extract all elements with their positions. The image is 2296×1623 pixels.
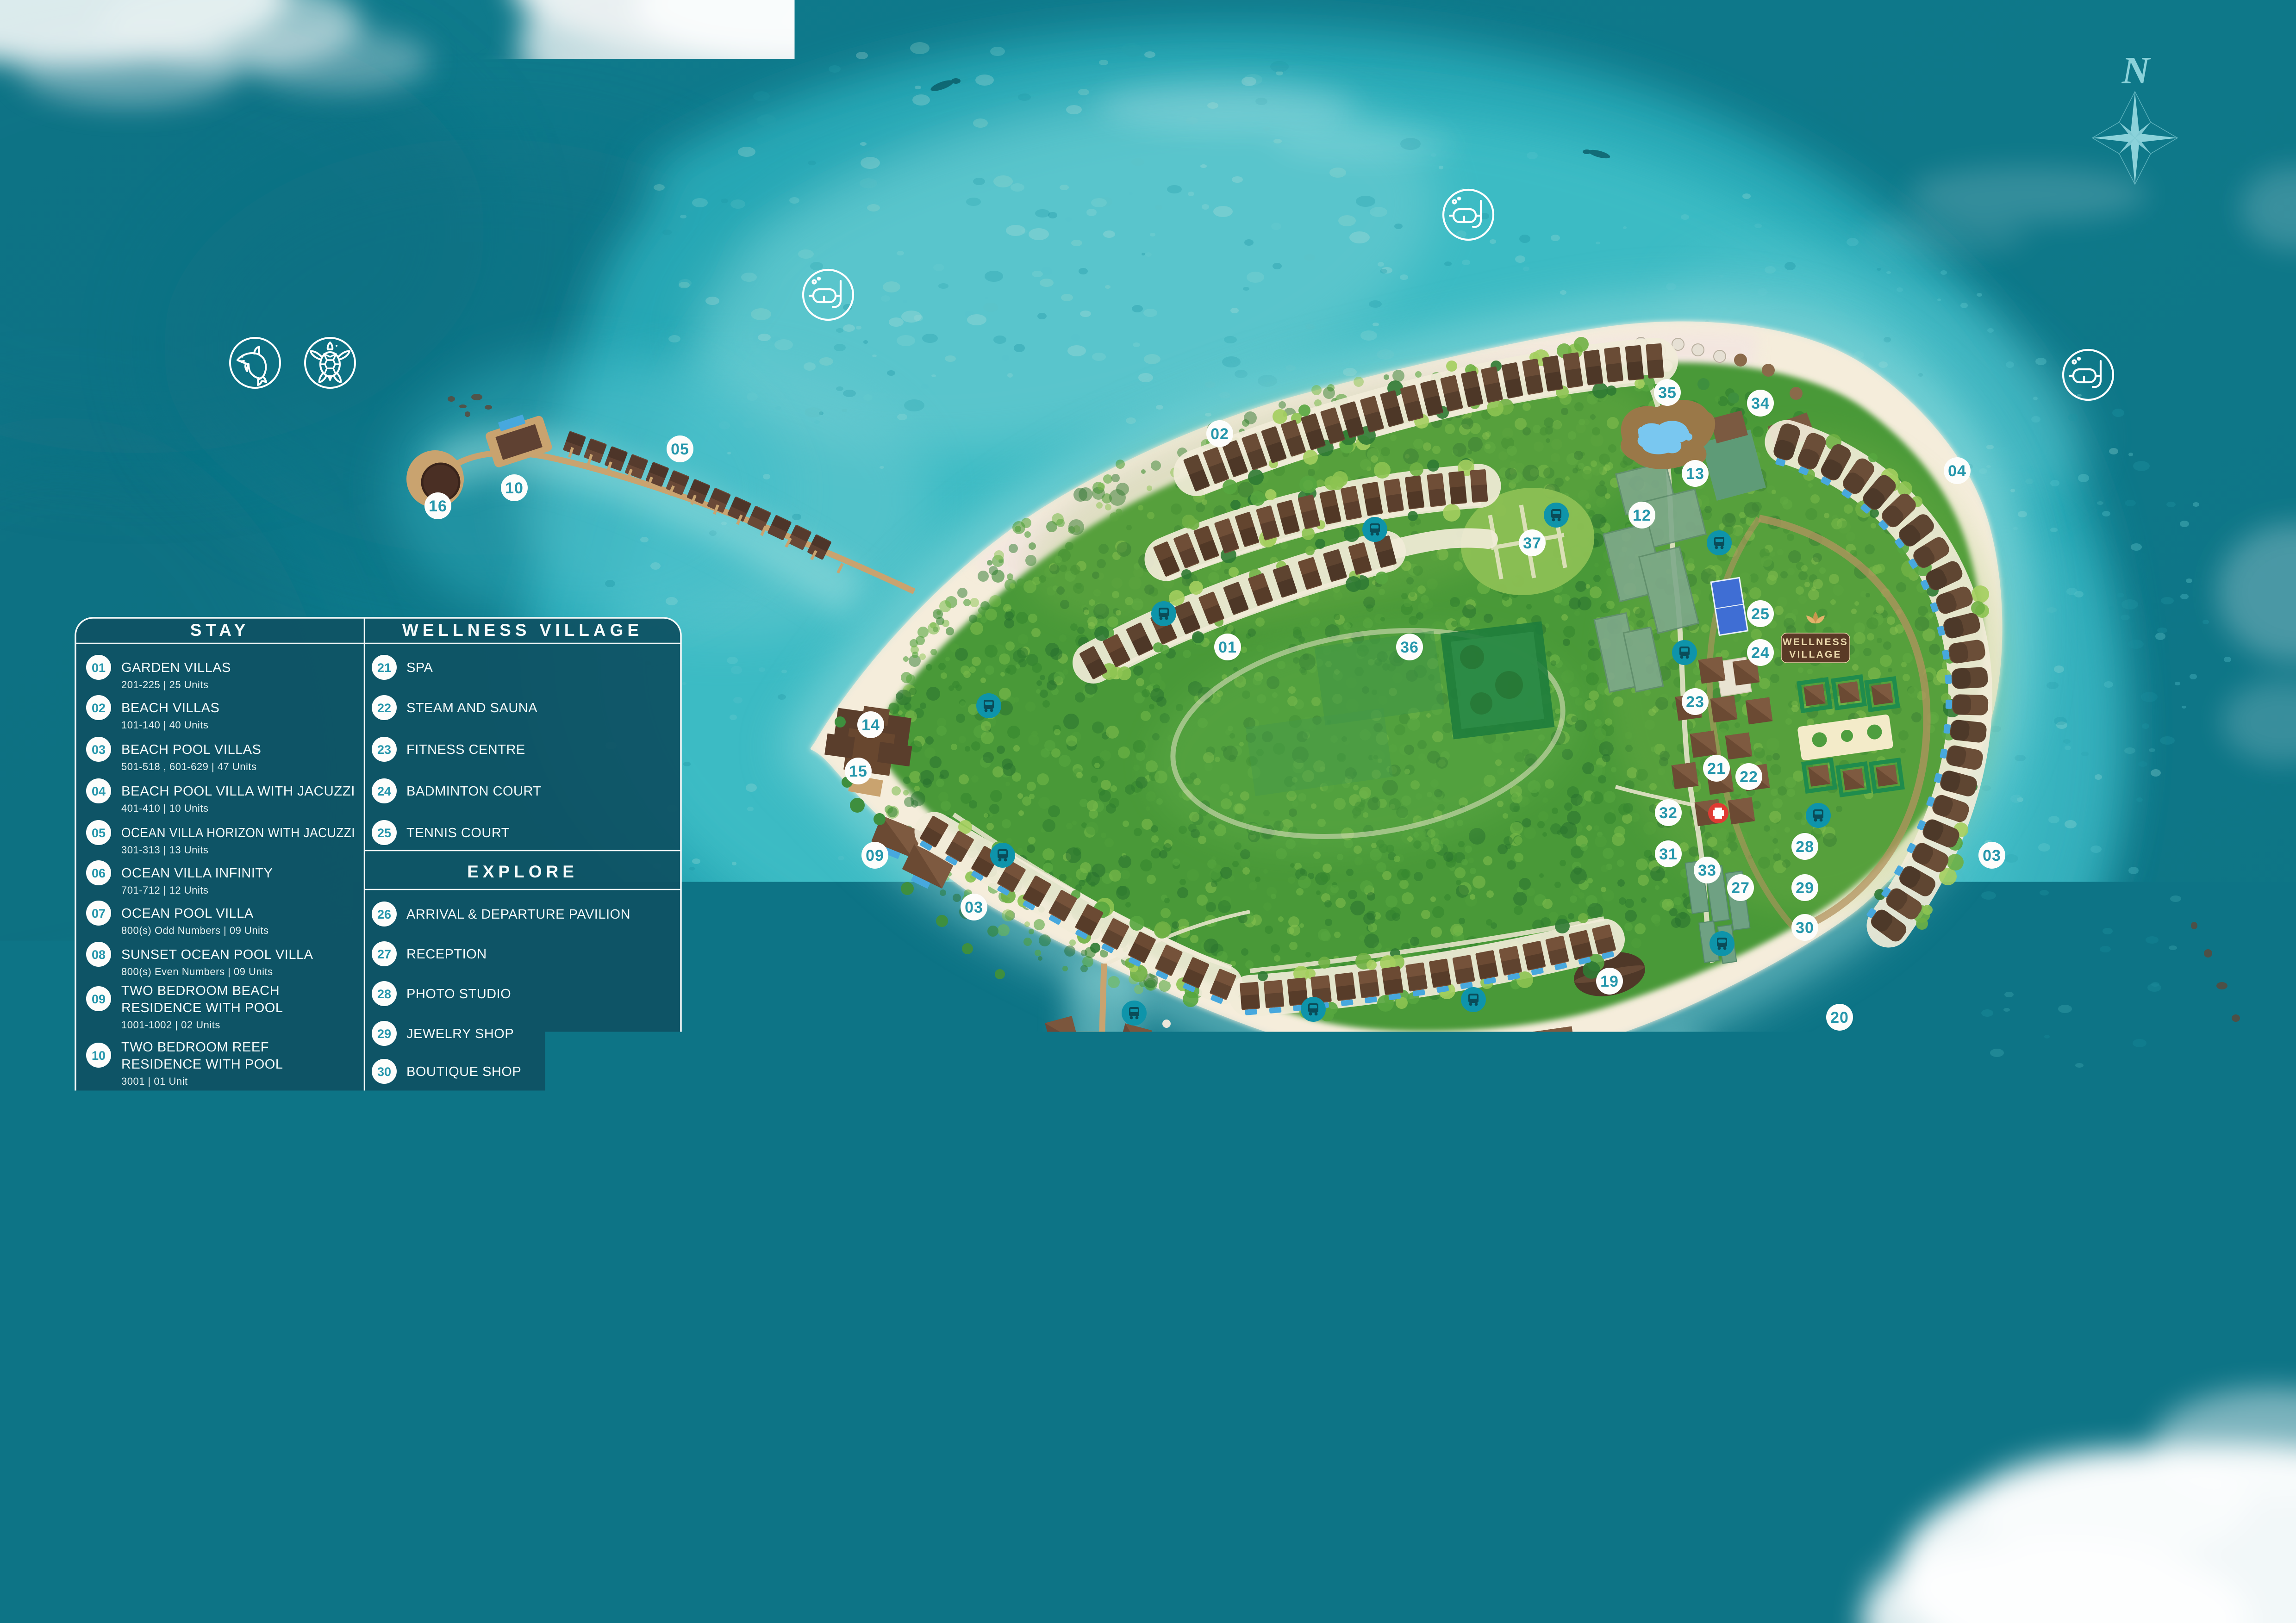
svg-text:22: 22	[377, 701, 391, 715]
svg-text:RECEPTION: RECEPTION	[406, 947, 487, 962]
svg-text:OLIVES & VINES: OLIVES & VINES	[121, 1387, 230, 1402]
svg-text:EXPLORE: EXPLORE	[467, 862, 578, 881]
svg-text:03: 03	[1983, 847, 2001, 864]
svg-text:37: 37	[1523, 535, 1541, 552]
svg-text:27: 27	[1731, 879, 1750, 897]
svg-text:21: 21	[1707, 760, 1726, 777]
svg-text:PAVILION: PAVILION	[406, 1388, 468, 1403]
svg-text:AQUA BITE: AQUA BITE	[121, 1472, 194, 1487]
svg-text:31: 31	[1659, 846, 1678, 863]
svg-text:07: 07	[92, 907, 106, 920]
svg-text:38: 38	[377, 1389, 391, 1403]
svg-text:11: 11	[92, 1098, 106, 1112]
svg-text:06: 06	[992, 1084, 1010, 1101]
svg-text:DIVE CLUB: DIVE CLUB	[406, 1183, 480, 1198]
svg-text:12: 12	[1633, 507, 1651, 524]
svg-text:RAIYVILLA: RAIYVILLA	[121, 1267, 191, 1281]
svg-text:Seafood Restaurant & Bar (Open: Seafood Restaurant & Bar (Opening Soon)	[121, 1491, 324, 1502]
svg-text:13: 13	[1686, 465, 1704, 483]
svg-text:16: 16	[92, 1347, 106, 1361]
svg-text:02: 02	[1210, 425, 1229, 443]
svg-text:JAAFAIY: JAAFAIY	[121, 1185, 177, 1200]
svg-text:WELLNESS: WELLNESS	[1783, 637, 1848, 647]
svg-text:12: 12	[92, 1186, 106, 1200]
svg-text:701-712 | 12 Units: 701-712 | 12 Units	[121, 884, 208, 896]
svg-text:32: 32	[1659, 804, 1678, 822]
svg-text:401-410 | 10 Units: 401-410 | 10 Units	[121, 802, 208, 814]
svg-text:16: 16	[429, 497, 447, 515]
svg-text:OCEAN POOL VILLA: OCEAN POOL VILLA	[121, 906, 254, 921]
svg-text:07: 07	[1148, 1219, 1167, 1236]
svg-text:05: 05	[92, 826, 106, 840]
svg-text:PHOTO STUDIO: PHOTO STUDIO	[406, 987, 511, 1001]
svg-text:35: 35	[377, 1264, 391, 1278]
svg-text:WELLNESS VILLAGE: WELLNESS VILLAGE	[402, 621, 643, 640]
svg-text:04: 04	[92, 784, 106, 798]
svg-text:29: 29	[1796, 879, 1814, 897]
svg-text:30: 30	[1796, 919, 1814, 937]
svg-text:30: 30	[377, 1065, 391, 1079]
svg-text:32: 32	[377, 1143, 391, 1157]
svg-text:18: 18	[92, 1430, 106, 1444]
svg-text:TURTLE: TURTLE	[477, 1523, 531, 1537]
svg-text:OCEAN VILLA INFINITY: OCEAN VILLA INFINITY	[121, 866, 273, 881]
svg-text:04: 04	[1948, 462, 1966, 480]
svg-text:23: 23	[1686, 693, 1704, 711]
svg-text:1001-1002 | 02 Units: 1001-1002 | 02 Units	[121, 1019, 220, 1031]
svg-text:3001 | 01 Unit: 3001 | 01 Unit	[121, 1076, 188, 1087]
svg-text:UDHARES BAR: UDHARES BAR	[121, 1227, 221, 1242]
svg-text:KIDS CLUB: KIDS CLUB	[406, 1103, 480, 1118]
svg-text:(TWO BEDROOM WITH POOL): (TWO BEDROOM WITH POOL)	[121, 1106, 319, 1121]
svg-text:LEBANESE RESTAURANT: LEBANESE RESTAURANT	[121, 1430, 290, 1444]
svg-text:33: 33	[1698, 862, 1716, 879]
svg-text:34: 34	[1751, 395, 1770, 412]
svg-text:17: 17	[92, 1387, 106, 1401]
svg-text:20: 20	[1830, 1009, 1849, 1026]
svg-text:01: 01	[92, 661, 106, 675]
svg-text:01: 01	[1218, 639, 1237, 656]
svg-text:03: 03	[965, 899, 983, 916]
svg-text:GARDEN VILLAS: GARDEN VILLAS	[121, 660, 231, 675]
svg-text:28: 28	[377, 987, 391, 1001]
svg-text:BADMINTON COURT: BADMINTON COURT	[406, 784, 542, 799]
svg-text:N: N	[2121, 49, 2152, 92]
svg-text:36: 36	[1400, 639, 1419, 656]
svg-text:TWO BEDROOM REEF: TWO BEDROOM REEF	[121, 1040, 269, 1055]
svg-text:23: 23	[377, 743, 391, 757]
svg-text:20: 20	[92, 1516, 106, 1530]
svg-text:BOUTIQUE SHOP: BOUTIQUE SHOP	[406, 1064, 521, 1079]
svg-text:CLINIC: CLINIC	[406, 1143, 452, 1157]
svg-text:02: 02	[92, 701, 106, 715]
svg-text:TEPPAN DE OISHI: TEPPAN DE OISHI	[121, 1307, 240, 1322]
svg-text:RESIDENCE WITH POOL: RESIDENCE WITH POOL	[121, 1057, 283, 1072]
svg-text:OCEAN VILLA HORIZON WITH JACU: OCEAN VILLA HORIZON WITH JACUZZI	[121, 826, 355, 840]
svg-text:25: 25	[377, 826, 391, 840]
svg-text:SPA: SPA	[406, 660, 433, 675]
svg-text:Mexican Restaurant & Bar: Mexican Restaurant & Bar	[121, 1365, 246, 1376]
svg-text:33: 33	[377, 1183, 391, 1197]
svg-text:26: 26	[377, 908, 391, 921]
svg-text:29: 29	[377, 1027, 391, 1041]
svg-text:DOLPHIN: DOLPHIN	[390, 1523, 452, 1537]
svg-text:36: 36	[377, 1305, 391, 1319]
svg-text:BEACH VILLAS: BEACH VILLAS	[121, 701, 219, 715]
svg-text:25: 25	[1751, 605, 1770, 623]
svg-text:ARRIVAL & DEPARTURE PAVILION: ARRIVAL & DEPARTURE PAVILION	[406, 907, 630, 922]
svg-text:101-140 | 40 Units: 101-140 | 40 Units	[121, 719, 208, 731]
svg-text:MOSQUE: MOSQUE	[406, 1305, 468, 1319]
svg-text:28: 28	[1796, 838, 1814, 856]
svg-text:10: 10	[92, 1049, 106, 1063]
svg-text:19: 19	[1600, 973, 1619, 990]
svg-text:STAY: STAY	[190, 621, 250, 640]
svg-text:TENNIS COURT: TENNIS COURT	[406, 826, 510, 840]
svg-text:09: 09	[866, 847, 884, 864]
svg-text:21: 21	[377, 661, 391, 675]
svg-text:09: 09	[92, 992, 106, 1006]
svg-text:INNER REEF LINE: INNER REEF LINE	[1370, 1238, 1564, 1256]
svg-text:Indian Vegetarian Restaurant: Indian Vegetarian Restaurant	[121, 1534, 260, 1546]
svg-text:TWO BEDROOM BEACH: TWO BEDROOM BEACH	[121, 983, 280, 998]
svg-text:VELAA LUXURY RESIDENCE: VELAA LUXURY RESIDENCE	[121, 1089, 309, 1104]
svg-text:VILLAGE: VILLAGE	[1789, 649, 1841, 660]
svg-text:501-518 , 601-629 | 47 Units: 501-518 , 601-629 | 47 Units	[121, 761, 256, 772]
svg-text:SNORKELING: SNORKELING	[584, 1523, 675, 1537]
svg-text:03: 03	[1170, 1079, 1189, 1097]
svg-text:Buffet Restaurant: Buffet Restaurant	[121, 1204, 204, 1215]
svg-text:13: 13	[92, 1227, 106, 1241]
svg-text:19: 19	[92, 1473, 106, 1486]
svg-text:201-225 | 25 Units: 201-225 | 25 Units	[121, 679, 208, 690]
svg-text:REEF EXTENT: REEF EXTENT	[1137, 1328, 1288, 1345]
svg-text:37: 37	[377, 1347, 391, 1361]
svg-text:15: 15	[92, 1308, 106, 1322]
svg-text:27: 27	[377, 947, 391, 961]
svg-text:14: 14	[92, 1267, 106, 1281]
svg-text:STEAM AND SAUNA: STEAM AND SAUNA	[406, 701, 537, 715]
svg-text:15: 15	[849, 763, 867, 780]
svg-text:03: 03	[92, 743, 106, 757]
svg-text:OCEAN SPICE: OCEAN SPICE	[121, 1516, 216, 1530]
svg-text:05: 05	[671, 441, 689, 458]
svg-text:Japanese Restaurant: Japanese Restaurant	[121, 1326, 223, 1337]
svg-text:24: 24	[377, 784, 391, 798]
svg-text:08: 08	[921, 1213, 939, 1230]
svg-text:AMIGOS: AMIGOS	[121, 1346, 176, 1361]
svg-text:CHEF GARDEN: CHEF GARDEN	[406, 1347, 507, 1362]
svg-text:26: 26	[1648, 1177, 1666, 1194]
svg-text:Asian Fusion Restaurant & Bar: Asian Fusion Restaurant & Bar	[121, 1285, 268, 1297]
svg-text:34: 34	[377, 1224, 391, 1237]
svg-text:11: 11	[1523, 1050, 1541, 1068]
svg-text:14: 14	[861, 716, 880, 734]
svg-text:35: 35	[1658, 384, 1677, 402]
svg-text:38: 38	[1008, 1386, 1026, 1404]
svg-text:RESIDENCE WITH POOL: RESIDENCE WITH POOL	[121, 1001, 283, 1015]
svg-text:SWIMMING POOL: SWIMMING POOL	[406, 1223, 522, 1238]
svg-text:BEACH POOL VILLA WITH JACUZZI: BEACH POOL VILLA WITH JACUZZI	[121, 784, 355, 799]
svg-text:SUNSET OCEAN POOL VILLA: SUNSET OCEAN POOL VILLA	[121, 947, 313, 962]
svg-text:18: 18	[1656, 1254, 1675, 1271]
svg-text:800(s) Even Numbers | 09 Units: 800(s) Even Numbers | 09 Units	[121, 966, 273, 977]
svg-text:301-313 | 13 Units: 301-313 | 13 Units	[121, 844, 208, 856]
svg-text:FITNESS CENTRE: FITNESS CENTRE	[406, 742, 525, 757]
svg-text:22: 22	[1740, 768, 1758, 786]
svg-text:JEWELRY SHOP: JEWELRY SHOP	[406, 1026, 514, 1041]
svg-text:Mediterranean Restaurant: Mediterranean Restaurant	[121, 1405, 245, 1417]
svg-text:BEACH POOL VILLAS: BEACH POOL VILLAS	[121, 742, 261, 757]
svg-text:06: 06	[92, 866, 106, 880]
svg-text:WINE & DINE: WINE & DINE	[143, 1147, 296, 1166]
svg-text:10: 10	[505, 479, 524, 497]
svg-text:WATER SPORTS: WATER SPORTS	[406, 1264, 515, 1279]
svg-text:08: 08	[92, 948, 106, 962]
svg-text:17: 17	[1028, 1319, 1046, 1337]
svg-text:1003 | 01 Unit: 1003 | 01 Unit	[121, 1125, 188, 1136]
svg-text:24: 24	[1751, 644, 1770, 662]
svg-text:31: 31	[377, 1103, 391, 1117]
svg-text:800(s) Odd Numbers | 09 Units: 800(s) Odd Numbers | 09 Units	[121, 925, 269, 936]
svg-text:(Opening Soon): (Opening Soon)	[121, 1448, 196, 1460]
